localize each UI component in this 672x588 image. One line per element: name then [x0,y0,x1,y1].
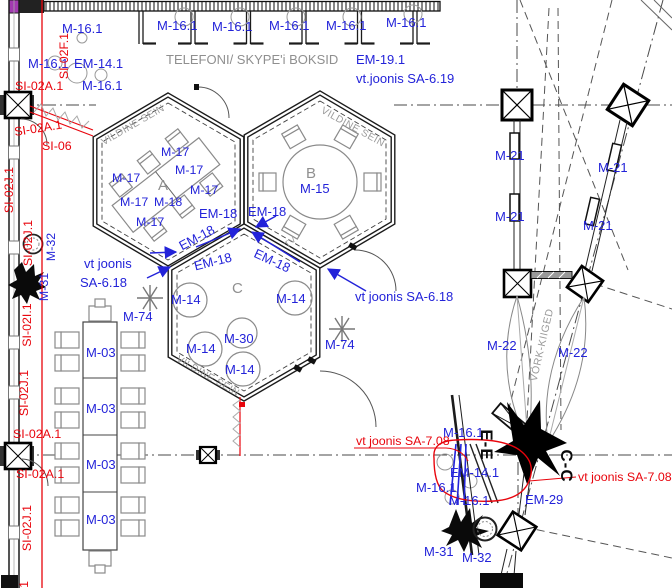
label-m32-br: M-32 [462,550,492,565]
label-m17-6: M-17 [136,215,164,229]
label-booth-1: M-16.1 [157,18,197,33]
label-m21-2: M-21 [598,160,628,175]
ref-sa618-l1: vt joonis [84,256,132,271]
hatched-wall [44,2,440,12]
bottom-block [480,573,523,588]
mark-si02a-1: SI-02A.1 [15,79,63,93]
label-m17-5: M-17 [120,195,148,209]
wall-column-top [0,92,34,118]
label-m03-3: M-03 [86,457,116,472]
label-m21-1: M-21 [495,148,525,163]
column-e [498,512,537,551]
long-table [55,299,145,573]
booths-caption: TELEFONI/ SKYPE'i BOKSID [166,52,338,67]
mark-si02j-4: SI-02J.1 [20,505,34,551]
mark-si02a-4: SI-02A.1 [16,467,64,481]
red-joint-si06 [233,397,245,456]
label-m22-1: M-22 [487,338,517,353]
section-cc: C-C [557,449,576,482]
label-m18: M-18 [154,195,182,209]
label-m14-3: M-14 [186,341,216,356]
label-em18-1: EM-18 [199,206,237,221]
room-c: C [232,280,243,297]
label-m17-3: M-17 [112,171,140,185]
label-m30: M-30 [224,331,254,346]
room-a: A [158,177,168,194]
ref-sa708-right: vt joonis SA-7.08 [578,470,672,484]
label-m31-left: M-31 [37,273,51,301]
column-b [607,84,648,125]
label-m32-left: M-32 [44,233,58,261]
label-booth-4: M-16.1 [326,18,366,33]
label-booth-5: M-16.1 [386,15,426,30]
top-wall [9,0,440,13]
ref-sa618-l2: SA-6.18 [80,275,127,290]
section-ee: E-E [477,429,496,460]
mark-si02a-2: SI-02A.1 [13,118,63,139]
label-m17-1: M-17 [161,145,189,159]
label-em14-br: EM-14.1 [450,465,499,480]
label-m17-2: M-17 [175,163,203,177]
label-m31-br: M-31 [424,544,454,559]
wall-column-bottom [0,443,34,469]
label-m16-tl3: M-16.1 [82,78,122,93]
mark-si02j-3: SI-02J.1 [17,370,31,416]
label-m17-4: M-17 [190,183,218,197]
label-booth-2: M-16.1 [212,19,252,34]
label-em29: EM-29 [525,492,563,507]
column-a [502,90,532,120]
label-m14-2: M-14 [276,291,306,306]
mark-si06-tl: SI-06 [42,139,72,153]
label-m22-2: M-22 [558,345,588,360]
floor-plan-canvas: M-16.1 M-16.1 M-16.1 M-16.1 M-16.1 TELEF… [0,0,672,588]
beam [531,272,572,279]
label-m03-1: M-03 [86,345,116,360]
label-m15: M-15 [300,181,330,196]
label-m74-right: M-74 [325,337,355,352]
swings [510,120,627,271]
label-m03-4: M-03 [86,512,116,527]
mark-si02f: SI-02F.1 [57,33,71,79]
column-centre [196,447,220,463]
label-m03-2: M-03 [86,401,116,416]
label-booth-3: M-16.1 [269,18,309,33]
mark-si02j-1: SI-02J.1 [2,167,16,213]
mark-si02j-2: SI-02J.1 [21,220,35,266]
wall-corner-block [19,0,44,13]
wall-block [1,575,18,588]
label-em14-tl: EM-14.1 [74,56,123,71]
label-m74-left: M-74 [123,309,153,324]
floor-plan-drawing: M-16.1 M-16.1 M-16.1 M-16.1 M-16.1 TELEF… [0,0,672,588]
mark-si02i: SI-02I.1 [20,303,34,347]
label-m14-1: M-14 [171,292,201,307]
label-m14-4: M-14 [225,362,255,377]
ref-sa618-right: vt joonis SA-6.18 [355,289,453,304]
label-m21-3: M-21 [495,209,525,224]
label-m21-4: M-21 [583,218,613,233]
plant-m74-left [137,285,163,311]
felt-wall-a: VILDINE SEIN [100,103,167,148]
mark-si02j-5: SI-02J.1 [17,581,31,588]
label-em18-2: EM-18 [248,204,286,219]
label-m16-br3: M-16.1 [449,493,489,508]
ref-sa619: vt.joonis SA-6.19 [356,71,454,86]
mark-si02a-3: SI-02A.1 [13,427,61,441]
column-c [504,270,531,297]
label-em19: EM-19.1 [356,52,405,67]
room-b: B [306,165,316,182]
ref-sa708-left: vt joonis SA-7.08 [356,434,450,448]
